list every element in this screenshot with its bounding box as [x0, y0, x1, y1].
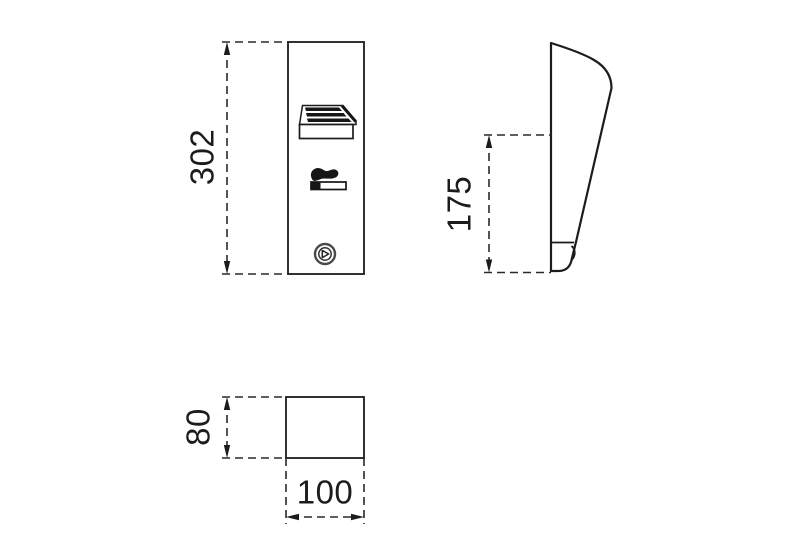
bottom-view: [286, 397, 364, 458]
arrow-up: [224, 397, 230, 410]
dim-label-bottom-depth: 80: [182, 408, 215, 446]
side-view-outline: [551, 43, 612, 271]
lock-icon: [315, 244, 335, 264]
arrow-right: [351, 514, 364, 520]
drawing-linework: [0, 0, 800, 556]
arrow-left: [286, 514, 299, 520]
front-view-outline: [288, 42, 364, 274]
dim-label-side-height: 175: [443, 176, 476, 233]
side-view: [551, 43, 612, 271]
arrow-down: [224, 445, 230, 458]
louvre-vent-icon: [300, 106, 357, 139]
arrow-down: [486, 260, 492, 273]
arrow-up: [224, 42, 230, 55]
dimension-bottom-depth: [222, 397, 286, 458]
drawing-canvas: 302 175 80 100: [0, 0, 800, 556]
dim-label-front-height: 302: [186, 129, 219, 186]
dimension-side-height: [484, 135, 551, 273]
dim-label-bottom-width: 100: [297, 476, 354, 509]
arrow-down: [224, 261, 230, 274]
bottom-view-outline: [286, 397, 364, 458]
dimension-front-height: [222, 42, 288, 274]
front-view: [288, 42, 364, 274]
arrow-up: [486, 135, 492, 148]
